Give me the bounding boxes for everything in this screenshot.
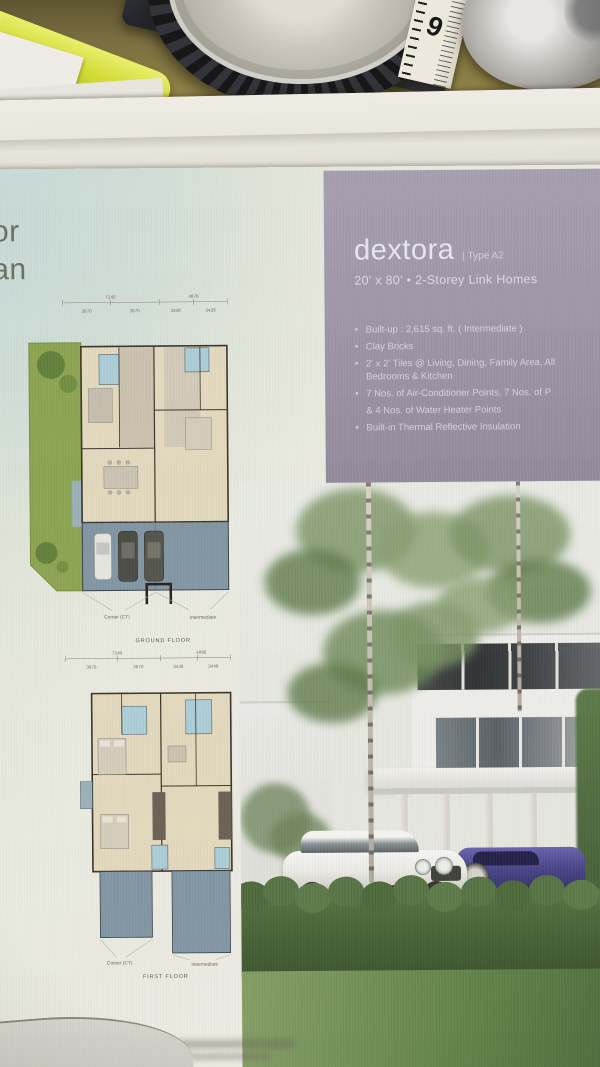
grass-lawn <box>238 969 600 1067</box>
feature-text: Clay Bricks <box>366 338 591 354</box>
unit-label: Intermediate <box>191 962 218 968</box>
dim-label: 3438 <box>205 308 216 313</box>
partial-heading: or an <box>0 213 27 289</box>
ff-balconies <box>100 871 231 954</box>
bullet-icon <box>355 404 366 418</box>
hedge-blob <box>393 875 429 905</box>
ground-floor-plan: 7140 4876 3670 3670 3438 3438 <box>14 290 237 654</box>
unit-label: Intermediate <box>190 615 217 621</box>
brochure-page: or an dextora| Type A2 20' x 80' • 2-Sto… <box>0 165 600 1067</box>
unit-label: Corner (CT) <box>107 960 133 966</box>
dim-label: 3670 <box>129 308 140 313</box>
hedge-blob <box>361 881 397 911</box>
bullet-icon: • <box>355 388 366 402</box>
info-panel: dextora| Type A2 20' x 80' • 2-Storey Li… <box>323 169 600 484</box>
gf-house <box>81 346 228 523</box>
unit-label: Corner (CT) <box>104 614 130 620</box>
dim-label: 7140 <box>112 650 123 655</box>
hedge-blob <box>461 876 497 906</box>
feature-text: Built-up : 2,615 sq. ft. ( Intermediate … <box>366 322 591 338</box>
dim-label: 4876 <box>188 294 199 299</box>
hedge-blob <box>263 876 299 906</box>
dim-label: 3670 <box>81 309 92 314</box>
product-title: dextora <box>354 234 454 267</box>
dim-label: 7140 <box>105 294 116 299</box>
feature-text: 2' x 2' Tiles @ Living, Dining, Family A… <box>366 355 591 384</box>
house-rendering <box>238 481 600 1067</box>
hedge-blob <box>328 877 364 907</box>
feature-text: 7 Nos. of Air-Conditioner Points, 7 Nos.… <box>366 386 591 402</box>
bullet-icon: • <box>355 323 366 337</box>
car-headlight <box>435 857 453 875</box>
carporch-canopy <box>368 767 600 789</box>
hedge-blob <box>563 880 599 910</box>
dim-label: 3670 <box>133 664 144 669</box>
feature-item: • Built-in Thermal Reflective Insulation <box>355 419 591 435</box>
gf-dimensions: 7140 4876 3670 3670 3438 3438 <box>62 294 227 314</box>
car-cabin <box>301 830 419 853</box>
gf-garden <box>29 343 83 591</box>
feature-item: • 2' x 2' Tiles @ Living, Dining, Family… <box>355 355 591 384</box>
feature-item: • Clay Bricks <box>355 338 591 354</box>
feature-list: • Built-up : 2,615 sq. ft. ( Intermediat… <box>355 322 592 435</box>
floor-name: FIRST FLOOR <box>143 974 189 980</box>
partial-heading-line2: an <box>0 251 27 289</box>
hedge-blob <box>427 882 463 912</box>
product-subtitle: 20' x 80' • 2-Storey Link Homes <box>354 272 590 288</box>
first-floor-plan: 7140 4896 3670 3670 3448 3448 <box>17 645 240 1001</box>
dim-label: 3438 <box>170 308 181 313</box>
hedge-blob <box>529 875 565 905</box>
bullet-icon: • <box>355 340 366 354</box>
feature-text: & 4 Nos. of Water Heater Points <box>366 403 591 419</box>
floor-name: GROUND FLOOR <box>135 638 190 644</box>
dim-label: 3448 <box>173 664 184 669</box>
feature-text: Built-in Thermal Reflective Insulation <box>366 419 591 435</box>
gf-labels: Corner (CT) Intermediate GROUND FLOOR <box>83 592 229 645</box>
front-hedge <box>238 889 600 978</box>
page-curl <box>0 1007 195 1067</box>
tree-foliage <box>287 662 377 723</box>
feature-item: & 4 Nos. of Water Heater Points <box>355 403 591 419</box>
feature-item: • Built-up : 2,615 sq. ft. ( Intermediat… <box>355 322 591 338</box>
ff-dimensions: 7140 4896 3670 3670 3448 3448 <box>65 650 230 670</box>
bullet-icon: • <box>355 357 366 385</box>
car-headlight <box>415 859 431 875</box>
dim-label: 3670 <box>86 665 97 670</box>
bullet-icon: • <box>355 421 366 435</box>
tree-foliage <box>264 549 361 616</box>
photo: 9 or an dextora| Type A2 20' x 80' • 2-S… <box>0 0 600 1067</box>
car-window <box>473 851 539 866</box>
dim-label: 4896 <box>196 650 207 655</box>
hedge-blob <box>495 880 531 910</box>
ff-house <box>80 693 232 872</box>
tree-foliage <box>437 577 521 634</box>
feature-item: • 7 Nos. of Air-Conditioner Points, 7 No… <box>355 386 591 402</box>
product-type-label: | Type A2 <box>462 250 503 261</box>
hedge-blob <box>295 883 331 913</box>
partial-heading-line1: or <box>0 213 26 251</box>
dim-label: 3448 <box>208 664 219 669</box>
